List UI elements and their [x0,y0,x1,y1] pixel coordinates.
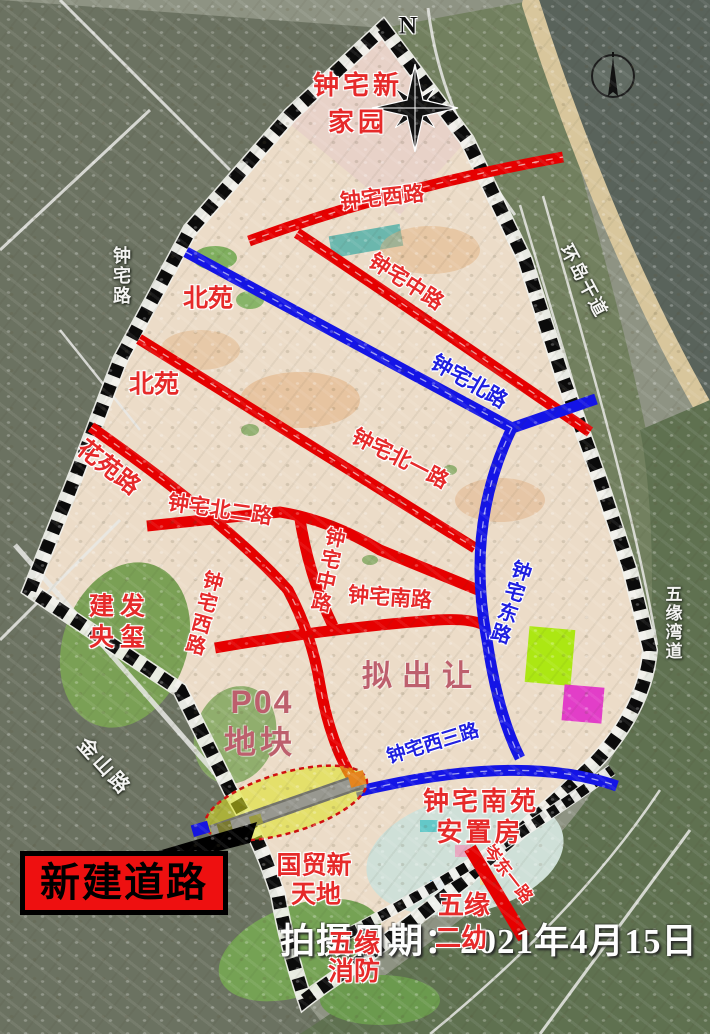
label-zhongzhai-xinjiayuan-line2: 家园 [328,109,388,135]
legend-new-road-label: 新建道路 [40,863,208,903]
satellite-planning-map: 拍摄日期：2021年4月15日 N 钟宅新 家园 钟宅西路 北苑 钟宅中路 钟宅… [0,0,710,1034]
north-letter: N [399,14,417,39]
label-p04-line2: 地块 [224,726,296,758]
legend-new-road: 新建道路 [20,851,228,915]
label-zhongzhai-nanlu: 钟宅南路 [347,585,432,612]
label-beiyuan-2: 北苑 [129,373,179,398]
label-wuyuan-xiaofang-line2: 消防 [328,958,380,984]
label-p04-line1: P04 [231,686,294,718]
label-wuyuanwan-dao: 五缘湾道 [664,585,681,661]
label-wuyuan-eryou-line1: 五缘 [438,892,490,918]
label-beiyuan-1: 北苑 [183,287,233,312]
bright-lime-patch [525,626,576,686]
label-wuyuan-eryou-line2: 二幼 [435,925,487,951]
label-jianfa-yangxi-line1: 建发 [89,595,151,620]
label-jianfa-yangxi-line2: 央玺 [89,626,151,651]
label-guomao-xintiandi-line2: 天地 [291,883,341,908]
label-wuyuan-xiaofang-line1: 五缘 [328,930,380,956]
label-zhongzhai-lu: 钟宅路 [112,246,130,306]
label-ni-churang: 拟出让 [362,662,482,692]
magenta-patch [562,684,605,723]
label-guomao-xintiandi-line1: 国贸新 [276,854,351,879]
label-nanyuan-anzhifang-line2: 安置房 [436,819,523,845]
label-nanyuan-anzhifang-line1: 钟宅南苑 [423,788,539,814]
label-zhongzhai-xinjiayuan-line1: 钟宅新 [313,72,403,98]
